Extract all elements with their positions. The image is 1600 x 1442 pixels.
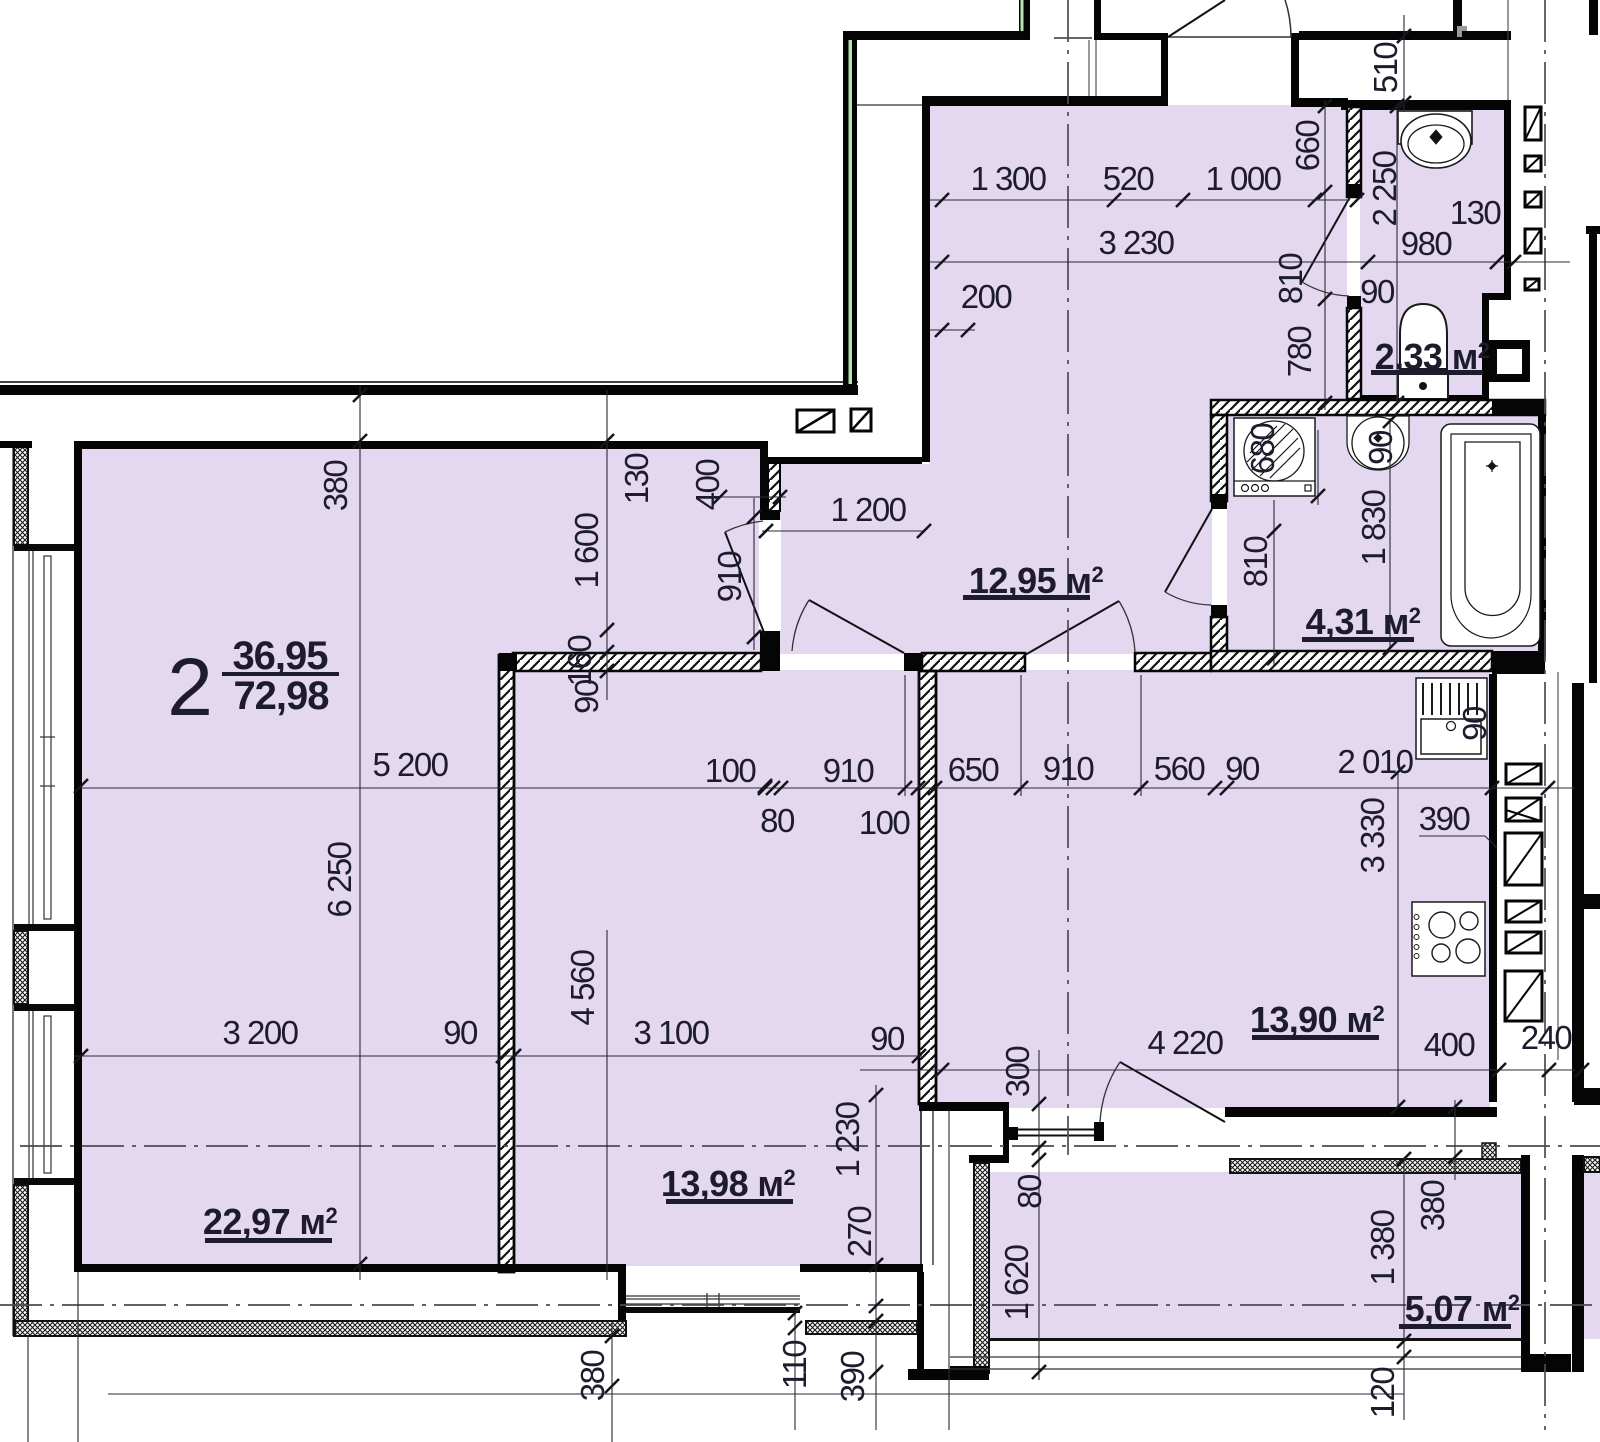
svg-text:90: 90 — [1362, 430, 1399, 465]
svg-text:3 100: 3 100 — [633, 1014, 709, 1051]
svg-text:520: 520 — [1103, 160, 1155, 197]
svg-text:72,98: 72,98 — [233, 674, 329, 718]
svg-text:810: 810 — [1237, 536, 1274, 588]
svg-text:90: 90 — [443, 1014, 478, 1051]
svg-text:400: 400 — [1424, 1026, 1476, 1063]
svg-text:1 620: 1 620 — [998, 1244, 1035, 1320]
svg-text:130: 130 — [618, 453, 655, 505]
svg-text:5,07 м2: 5,07 м2 — [1405, 1288, 1520, 1329]
svg-text:5 200: 5 200 — [372, 746, 448, 783]
svg-text:4 560: 4 560 — [564, 949, 601, 1025]
svg-text:13,98 м2: 13,98 м2 — [661, 1163, 796, 1204]
svg-text:300: 300 — [999, 1046, 1036, 1098]
svg-text:1 830: 1 830 — [1355, 489, 1392, 565]
svg-text:2 250: 2 250 — [1366, 150, 1403, 226]
svg-text:780: 780 — [1281, 326, 1318, 378]
svg-text:13,90 м2: 13,90 м2 — [1250, 999, 1385, 1040]
svg-text:400: 400 — [689, 459, 726, 511]
svg-text:1 380: 1 380 — [1364, 1209, 1401, 1285]
svg-text:3 200: 3 200 — [222, 1014, 298, 1051]
svg-text:910: 910 — [1043, 750, 1095, 787]
svg-text:12,95 м2: 12,95 м2 — [969, 560, 1104, 601]
svg-text:80: 80 — [1011, 1174, 1048, 1209]
svg-text:3 330: 3 330 — [1354, 797, 1391, 873]
svg-text:1 300: 1 300 — [970, 160, 1046, 197]
svg-text:560: 560 — [1154, 750, 1206, 787]
svg-text:80: 80 — [760, 802, 795, 839]
svg-text:910: 910 — [711, 551, 748, 603]
svg-text:100: 100 — [705, 752, 757, 789]
svg-text:2 010: 2 010 — [1337, 743, 1413, 780]
svg-text:120: 120 — [1364, 1367, 1401, 1419]
svg-text:650: 650 — [948, 751, 1000, 788]
svg-text:980: 980 — [1401, 225, 1453, 262]
svg-text:90: 90 — [568, 679, 605, 714]
svg-text:4,31 м2: 4,31 м2 — [1306, 601, 1421, 642]
svg-text:90: 90 — [1360, 273, 1395, 310]
svg-text:1 000: 1 000 — [1205, 160, 1281, 197]
svg-text:510: 510 — [1367, 42, 1404, 94]
svg-text:6 250: 6 250 — [321, 841, 358, 917]
svg-text:680: 680 — [1244, 423, 1281, 475]
svg-text:130: 130 — [1450, 194, 1502, 231]
svg-text:910: 910 — [823, 752, 875, 789]
svg-text:390: 390 — [834, 1351, 871, 1403]
svg-text:3 230: 3 230 — [1098, 224, 1174, 261]
svg-text:90: 90 — [870, 1020, 905, 1057]
svg-text:1 600: 1 600 — [568, 512, 605, 588]
svg-text:240: 240 — [1521, 1019, 1573, 1056]
svg-text:36,95: 36,95 — [232, 634, 328, 678]
svg-text:90: 90 — [1225, 750, 1260, 787]
svg-text:160: 160 — [561, 635, 598, 687]
svg-text:4 220: 4 220 — [1147, 1024, 1223, 1061]
svg-text:380: 380 — [1414, 1180, 1451, 1232]
svg-text:90: 90 — [1456, 706, 1493, 741]
svg-text:810: 810 — [1272, 253, 1309, 305]
svg-text:380: 380 — [317, 460, 354, 512]
svg-text:1 200: 1 200 — [830, 491, 906, 528]
svg-text:270: 270 — [841, 1206, 878, 1258]
svg-text:110: 110 — [776, 1340, 813, 1389]
svg-text:200: 200 — [961, 278, 1013, 315]
svg-text:390: 390 — [1419, 800, 1471, 837]
svg-text:22,97 м2: 22,97 м2 — [203, 1201, 338, 1242]
svg-text:100: 100 — [859, 804, 911, 841]
svg-text:380: 380 — [574, 1350, 611, 1402]
svg-text:660: 660 — [1289, 120, 1326, 172]
svg-text:2: 2 — [167, 642, 213, 733]
svg-text:1 230: 1 230 — [829, 1101, 866, 1177]
